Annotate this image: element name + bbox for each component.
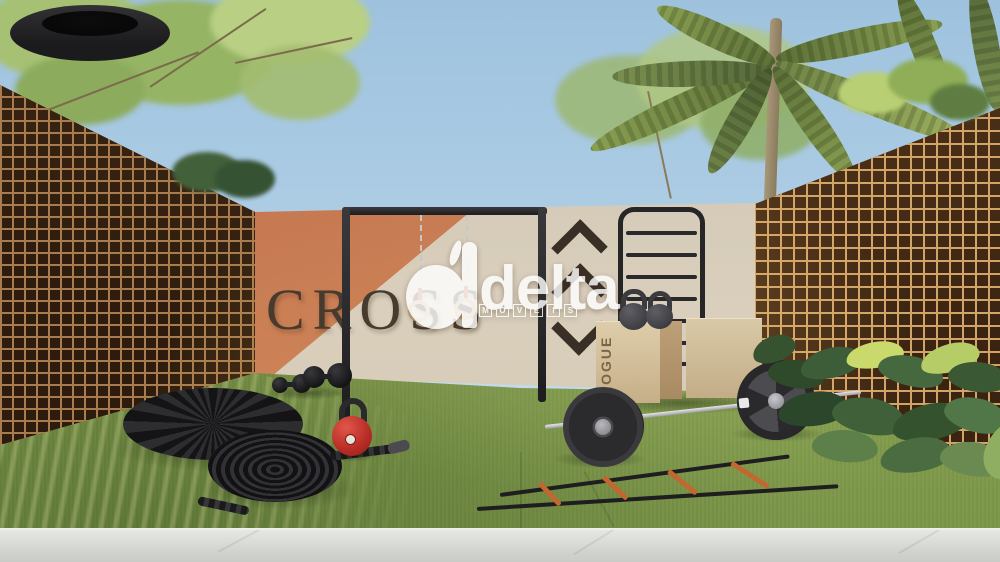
stall-bars-rung bbox=[626, 231, 697, 235]
paver-joint bbox=[899, 529, 940, 554]
watermark: delta I M Ó V E I S bbox=[393, 238, 643, 348]
brand-logo-circle bbox=[406, 265, 466, 329]
brand-subtitle-letter: M bbox=[479, 304, 492, 317]
rig-post-left bbox=[342, 207, 350, 420]
plyo-box-side bbox=[660, 321, 682, 399]
kettlebell-gray bbox=[646, 304, 673, 329]
tire-hole bbox=[42, 11, 138, 36]
rig-top-bar bbox=[342, 207, 547, 215]
barbell-plate bbox=[563, 387, 643, 467]
barbell-sleeve-hub bbox=[595, 419, 611, 435]
brand-subtitle-letter: I bbox=[462, 304, 475, 317]
dumbbell-bar bbox=[320, 374, 332, 379]
brand-subtitle-letter: V bbox=[513, 304, 526, 317]
foliage-blob bbox=[215, 160, 275, 198]
brand-subtitle-letter: Ó bbox=[496, 304, 509, 317]
concrete-walkway bbox=[0, 528, 1000, 562]
barbell-collar bbox=[739, 398, 750, 409]
kettlebell-label bbox=[345, 434, 356, 445]
paver-joint bbox=[573, 529, 613, 555]
brand-subtitle-letter: E bbox=[530, 304, 543, 317]
architectural-render: CROSS ROGUE bbox=[0, 0, 1000, 562]
dumbbell-bar bbox=[284, 382, 296, 387]
brand-subtitle: I M Ó V E I S bbox=[462, 304, 577, 317]
brand-subtitle-letter: I bbox=[547, 304, 560, 317]
battle-rope-coil bbox=[208, 430, 342, 502]
foliage-blob bbox=[930, 84, 990, 120]
paver-joint bbox=[218, 529, 260, 552]
brand-subtitle-letter: S bbox=[564, 304, 577, 317]
